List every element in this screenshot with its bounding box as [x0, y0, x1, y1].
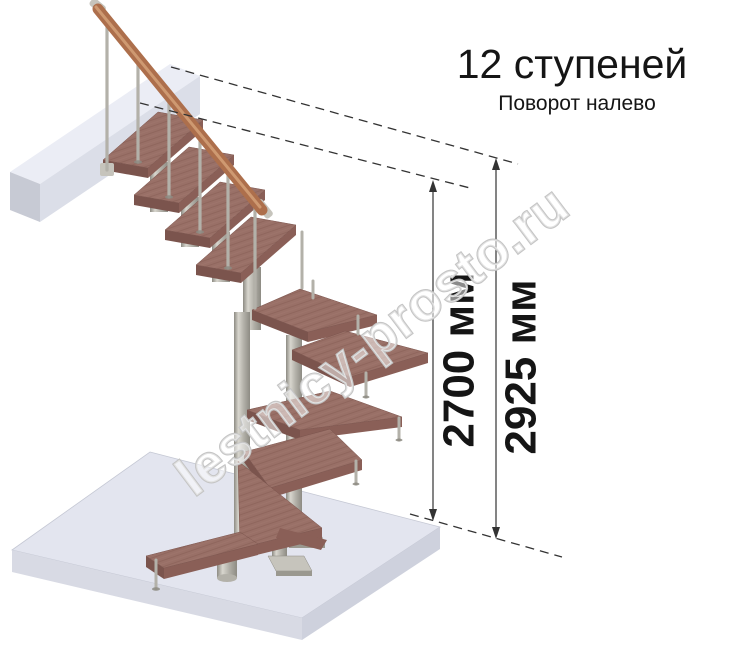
- dimension-label-2925: 2925 мм: [496, 279, 545, 454]
- rod-flange: [152, 587, 160, 591]
- staircase-product-illustration: 2700 мм 2925 мм 12 ступеней Поворот нале…: [0, 0, 744, 655]
- rod-flange: [353, 483, 360, 486]
- baluster-flange: [165, 195, 173, 199]
- baluster-flange: [196, 230, 204, 234]
- rod-flange: [363, 396, 370, 399]
- base-plate: [268, 556, 312, 571]
- column-foot: [217, 574, 237, 582]
- baluster-flange: [224, 266, 232, 270]
- diagram-subtitle: Поворот налево: [498, 92, 656, 115]
- dimension-arrow-up: [429, 180, 437, 192]
- rod-flange: [396, 439, 403, 442]
- diagram-title: 12 ступеней: [457, 41, 688, 87]
- staircase-diagram-svg: 2700 мм 2925 мм 12 ступеней Поворот нале…: [0, 0, 744, 655]
- baluster-flange: [134, 160, 142, 164]
- dimension-arrow-down: [492, 527, 500, 539]
- dimension-arrow-up: [492, 158, 500, 170]
- base-plate-side: [276, 571, 312, 576]
